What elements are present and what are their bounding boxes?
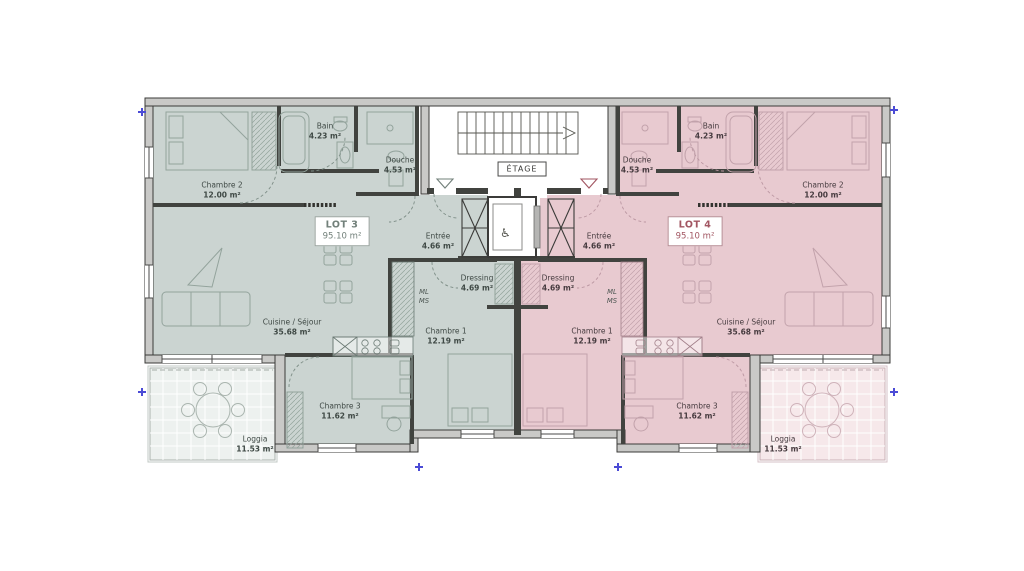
lot-area: 95.10 m² (323, 231, 362, 242)
room-name: Bain (695, 121, 727, 131)
lot-name: LOT 3 (323, 219, 362, 231)
lot4-label-box: LOT 4 95.10 m² (668, 216, 723, 246)
room-label-lot4-chambre3: Chambre 3 11.62 m² (676, 401, 717, 421)
room-name: Dressing (542, 273, 575, 283)
room-area: 12.19 m² (425, 336, 466, 346)
room-label-lot3-loggia: Loggia 11.53 m² (236, 434, 273, 454)
floor-plan-drawing: ♿ (0, 0, 1024, 571)
room-area: 11.53 m² (236, 444, 273, 454)
room-area: 12.19 m² (571, 336, 612, 346)
room-label-lot4-chambre2: Chambre 2 12.00 m² (802, 180, 843, 200)
alignment-marker (415, 463, 423, 471)
room-name: Loggia (236, 434, 273, 444)
appliance-label-lot3-ml-ms: ML MS (419, 288, 429, 306)
room-label-lot4-dressing: Dressing 4.69 m² (542, 273, 575, 293)
stair-hall (429, 106, 608, 198)
room-label-lot3-entree: Entrée 4.66 m² (422, 231, 454, 251)
room-label-lot4-entree: Entrée 4.66 m² (583, 231, 615, 251)
room-label-lot4-loggia: Loggia 11.53 m² (764, 434, 801, 454)
room-area: 4.66 m² (422, 241, 454, 251)
room-area: 4.23 m² (695, 131, 727, 141)
room-area: 12.00 m² (201, 190, 242, 200)
room-label-lot3-cuisine-sejour: Cuisine / Séjour 35.68 m² (263, 317, 322, 337)
room-name: Entrée (422, 231, 454, 241)
alignment-marker (138, 388, 146, 396)
room-area: 12.00 m² (802, 190, 843, 200)
room-area: 4.69 m² (542, 283, 575, 293)
room-area: 4.53 m² (384, 165, 416, 175)
ml-label: ML (419, 288, 429, 297)
room-label-lot3-bain: Bain 4.23 m² (309, 121, 341, 141)
alignment-marker (614, 463, 622, 471)
room-name: Entrée (583, 231, 615, 241)
room-label-lot3-chambre2: Chambre 2 12.00 m² (201, 180, 242, 200)
room-area: 4.69 m² (461, 283, 494, 293)
room-name: Douche (384, 155, 416, 165)
room-name: Dressing (461, 273, 494, 283)
room-area: 4.66 m² (583, 241, 615, 251)
room-label-lot3-chambre1: Chambre 1 12.19 m² (425, 326, 466, 346)
room-name: Chambre 2 (201, 180, 242, 190)
alignment-marker (138, 108, 146, 116)
room-name: Douche (621, 155, 653, 165)
room-area: 11.62 m² (676, 411, 717, 421)
room-name: Chambre 3 (676, 401, 717, 411)
room-area: 11.62 m² (319, 411, 360, 421)
room-name: Chambre 1 (571, 326, 612, 336)
room-area: 4.53 m² (621, 165, 653, 175)
room-label-lot3-chambre3: Chambre 3 11.62 m² (319, 401, 360, 421)
lot-name: LOT 4 (676, 219, 715, 231)
ms-label: MS (607, 297, 617, 306)
room-name: Chambre 3 (319, 401, 360, 411)
appliance-label-lot4-ml-ms: ML MS (607, 288, 617, 306)
room-area: 35.68 m² (717, 327, 776, 337)
elevator-core: ♿ (488, 197, 540, 257)
room-area: 4.23 m² (309, 131, 341, 141)
room-name: Cuisine / Séjour (263, 317, 322, 327)
room-label-lot4-chambre1: Chambre 1 12.19 m² (571, 326, 612, 346)
alignment-marker (890, 388, 898, 396)
room-label-lot4-bain: Bain 4.23 m² (695, 121, 727, 141)
room-label-lot3-dressing: Dressing 4.69 m² (461, 273, 494, 293)
room-name: Cuisine / Séjour (717, 317, 776, 327)
alignment-marker (890, 106, 898, 114)
room-name: Chambre 1 (425, 326, 466, 336)
room-name: Bain (309, 121, 341, 131)
ms-label: MS (419, 297, 429, 306)
room-name: Chambre 2 (802, 180, 843, 190)
lot-area: 95.10 m² (676, 231, 715, 242)
ml-label: ML (607, 288, 617, 297)
floor-plan-page: ♿ (0, 0, 1024, 571)
room-name: Loggia (764, 434, 801, 444)
room-label-lot4-douche: Douche 4.53 m² (621, 155, 653, 175)
floor-label-box: ÉTAGE (498, 162, 547, 177)
wheelchair-icon: ♿ (500, 226, 511, 240)
room-label-lot4-cuisine-sejour: Cuisine / Séjour 35.68 m² (717, 317, 776, 337)
room-area: 11.53 m² (764, 444, 801, 454)
floor-label: ÉTAGE (507, 165, 538, 174)
lot3-label-box: LOT 3 95.10 m² (315, 216, 370, 246)
room-label-lot3-douche: Douche 4.53 m² (384, 155, 416, 175)
room-area: 35.68 m² (263, 327, 322, 337)
